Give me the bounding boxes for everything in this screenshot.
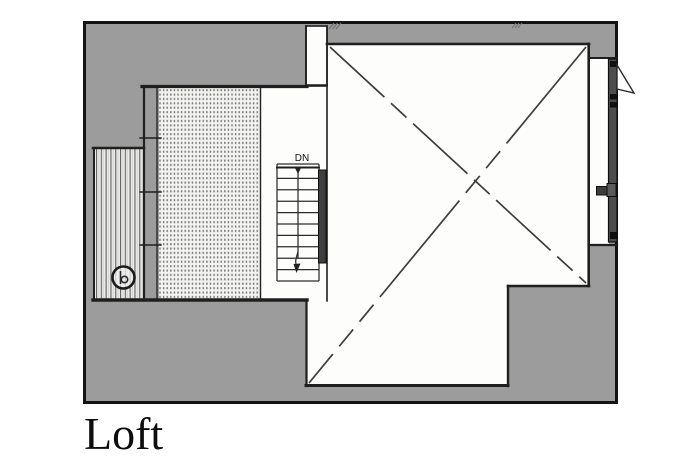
window-latch-plate xyxy=(607,184,616,197)
deck-circle-symbol xyxy=(113,267,135,289)
window-swing-triangle xyxy=(617,65,634,93)
stair-dn-label: DN xyxy=(295,153,309,164)
stair-corridor xyxy=(261,87,327,301)
loft-floor-area xyxy=(159,88,260,299)
window-hinge-mid-b xyxy=(610,102,617,108)
closet-strip xyxy=(306,26,327,86)
window-frame xyxy=(609,59,618,242)
window-hinge-mid-a xyxy=(610,94,617,100)
window-hinge-bottom xyxy=(610,232,617,239)
floor-plan-page: DN Loft xyxy=(0,0,700,460)
floor-plan-drawing: DN Loft xyxy=(0,0,700,460)
window-hinge-top xyxy=(610,61,617,67)
plan-title: Loft xyxy=(84,408,163,459)
stair-guard-wall xyxy=(319,170,327,263)
right-window-opening xyxy=(590,58,609,245)
